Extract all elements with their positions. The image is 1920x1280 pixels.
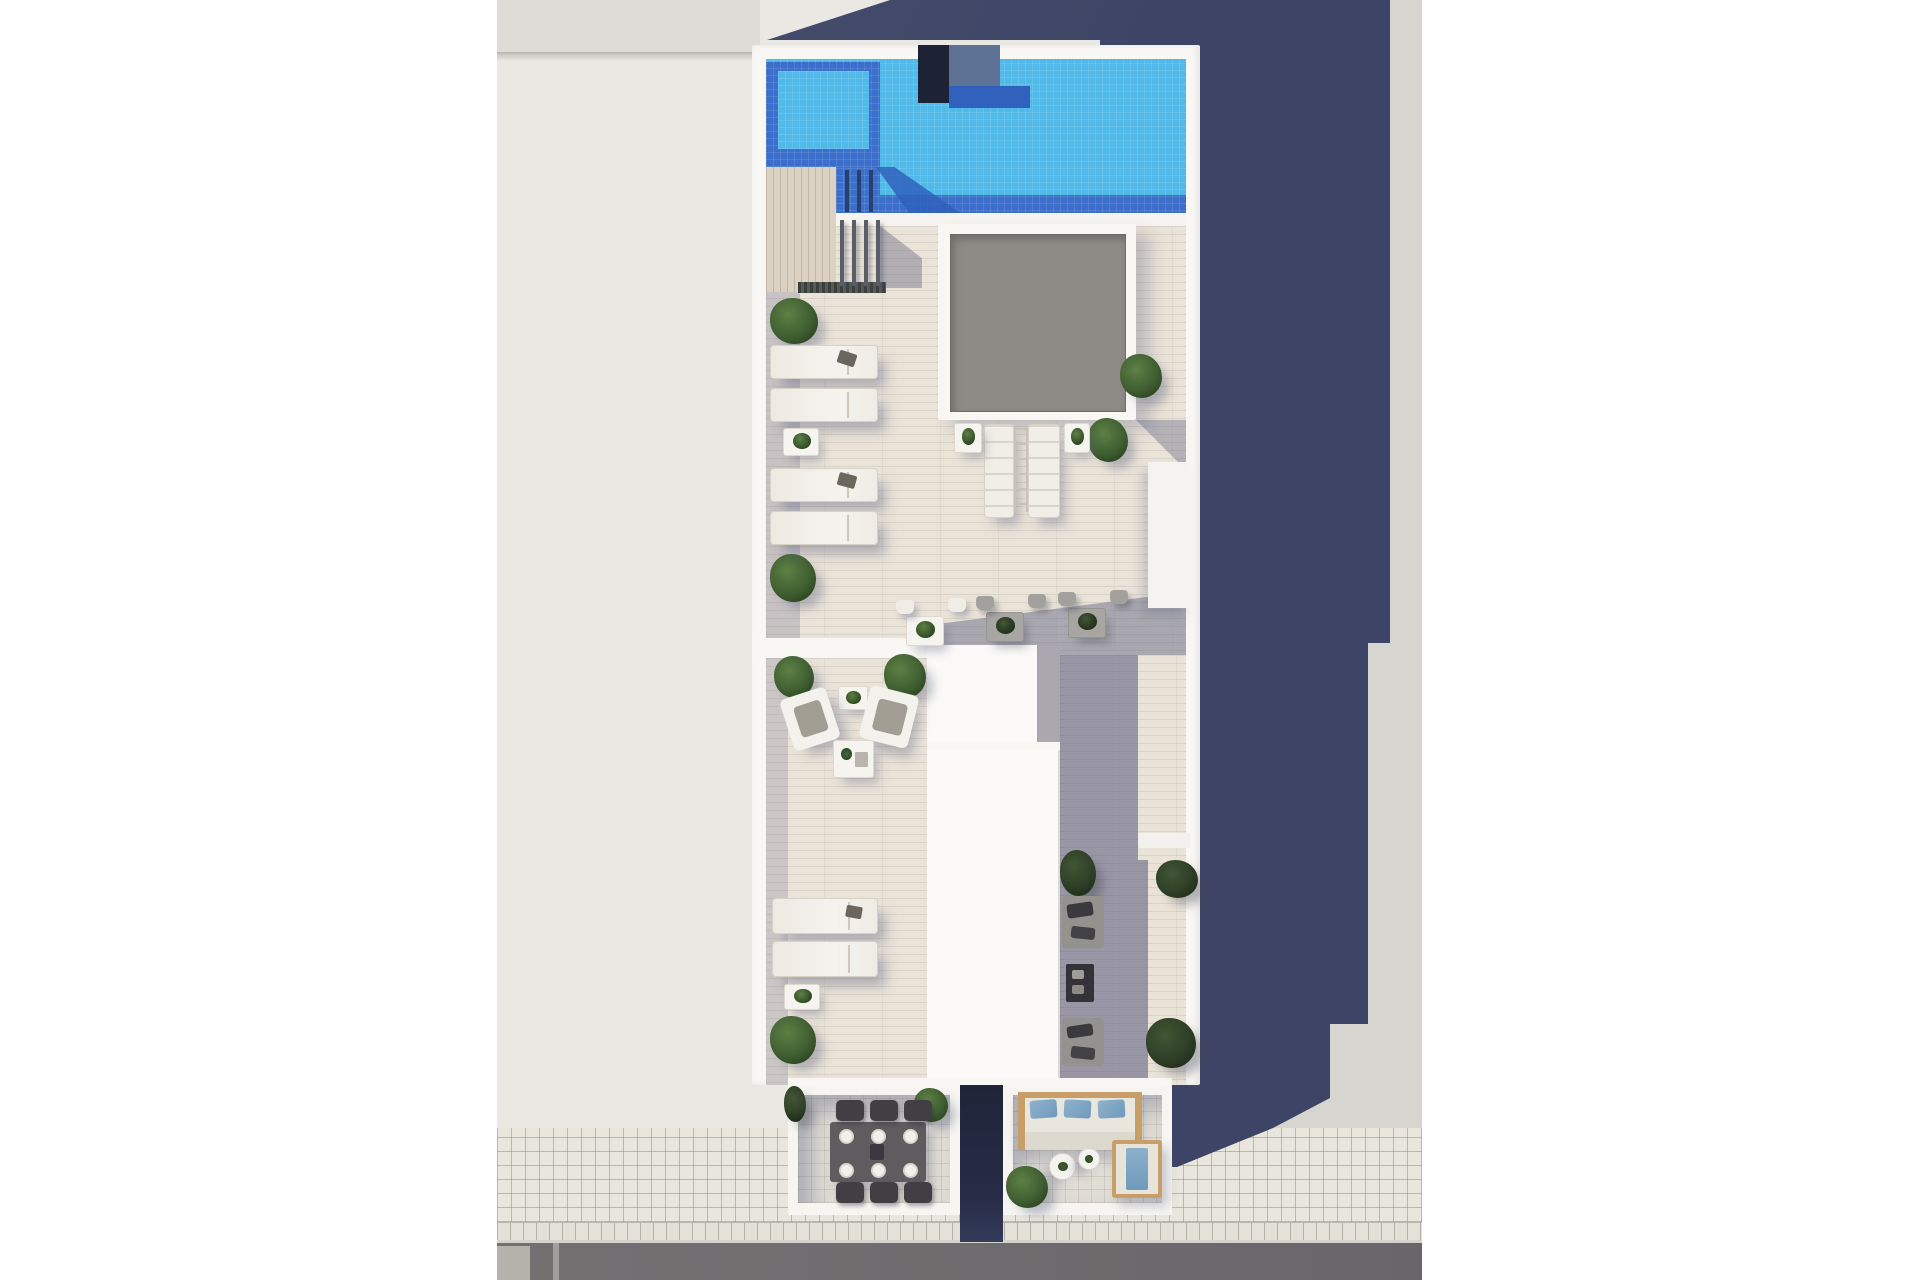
side-table — [838, 686, 868, 710]
side-table — [783, 428, 819, 456]
potted-plant — [770, 554, 816, 602]
pool-ladder-bar — [857, 170, 861, 212]
bistro-chair — [896, 600, 914, 614]
bistro-chair — [976, 596, 994, 610]
bistro-table — [906, 616, 944, 646]
bistro-table — [986, 612, 1024, 642]
potted-plant — [1006, 1166, 1048, 1208]
bistro-chair — [1028, 594, 1046, 608]
potted-plant — [784, 1086, 806, 1122]
bistro-chair — [1058, 592, 1076, 606]
side-table — [1064, 423, 1090, 453]
bistro-chair — [948, 598, 966, 612]
sun-lounger — [772, 941, 878, 977]
sofa-pillow — [1064, 1099, 1092, 1118]
potted-plant — [1060, 850, 1096, 896]
side-table — [954, 423, 982, 453]
dining-chair — [904, 1182, 932, 1203]
coffee-table-dark — [1066, 964, 1094, 1002]
railing-post — [876, 220, 880, 286]
bistro-table — [1068, 608, 1106, 638]
towel — [845, 905, 863, 920]
place-setting — [903, 1163, 918, 1178]
sun-lounger — [770, 511, 878, 545]
railing-post — [852, 220, 856, 286]
sofa-pillow — [1098, 1099, 1126, 1118]
shaded-sofa — [1062, 1018, 1104, 1066]
dining-chair — [870, 1182, 898, 1203]
place-setting — [903, 1129, 918, 1144]
dining-chair — [870, 1100, 898, 1121]
side-table — [784, 984, 820, 1010]
sun-lounger — [984, 424, 1014, 518]
sofa-pillow — [1029, 1099, 1057, 1119]
place-setting — [871, 1129, 886, 1144]
page: { "scene": { "type": "aerial-3d-render",… — [0, 0, 1920, 1280]
potted-plant — [770, 298, 818, 344]
dining-chair — [836, 1100, 864, 1121]
bistro-chair — [1110, 590, 1128, 604]
furniture-layer — [0, 0, 1920, 1280]
place-setting — [871, 1163, 886, 1178]
pool-ladder-bar — [869, 170, 873, 212]
coffee-table — [833, 740, 874, 778]
potted-plant — [770, 1016, 816, 1064]
sun-lounger — [770, 468, 878, 502]
potted-plant — [1120, 354, 1162, 398]
pool-ladder-bar — [845, 170, 849, 212]
railing-post — [840, 220, 844, 286]
sun-lounger — [1028, 424, 1060, 518]
dining-chair — [904, 1100, 932, 1121]
place-setting — [839, 1129, 854, 1144]
sun-lounger — [770, 388, 878, 422]
railing-post — [864, 220, 868, 286]
potted-plant — [1088, 418, 1128, 462]
potted-plant — [1146, 1018, 1196, 1068]
place-setting — [839, 1163, 854, 1178]
dining-chair — [836, 1182, 864, 1203]
shaded-sofa — [1062, 896, 1104, 948]
round-table — [1049, 1153, 1076, 1180]
potted-plant — [1156, 860, 1198, 898]
sun-lounger — [770, 345, 878, 379]
round-table — [1078, 1148, 1100, 1170]
lounger-frame — [1014, 428, 1028, 512]
sun-lounger — [772, 898, 878, 934]
